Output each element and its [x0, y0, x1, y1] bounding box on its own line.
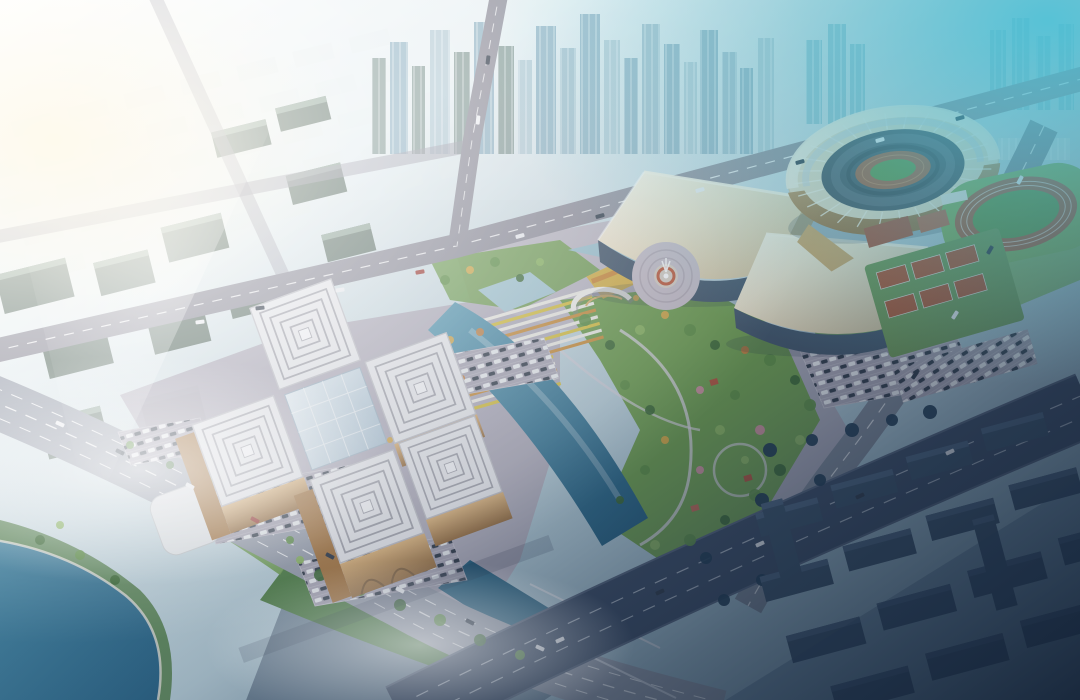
- cyan-haze-top-right: [0, 0, 1080, 700]
- atmosphere-overlays: [0, 0, 1080, 700]
- render-canvas: [0, 0, 1080, 700]
- aerial-render-cultural-sports-complex: Aerial rendering of a riverside cultural…: [0, 0, 1080, 700]
